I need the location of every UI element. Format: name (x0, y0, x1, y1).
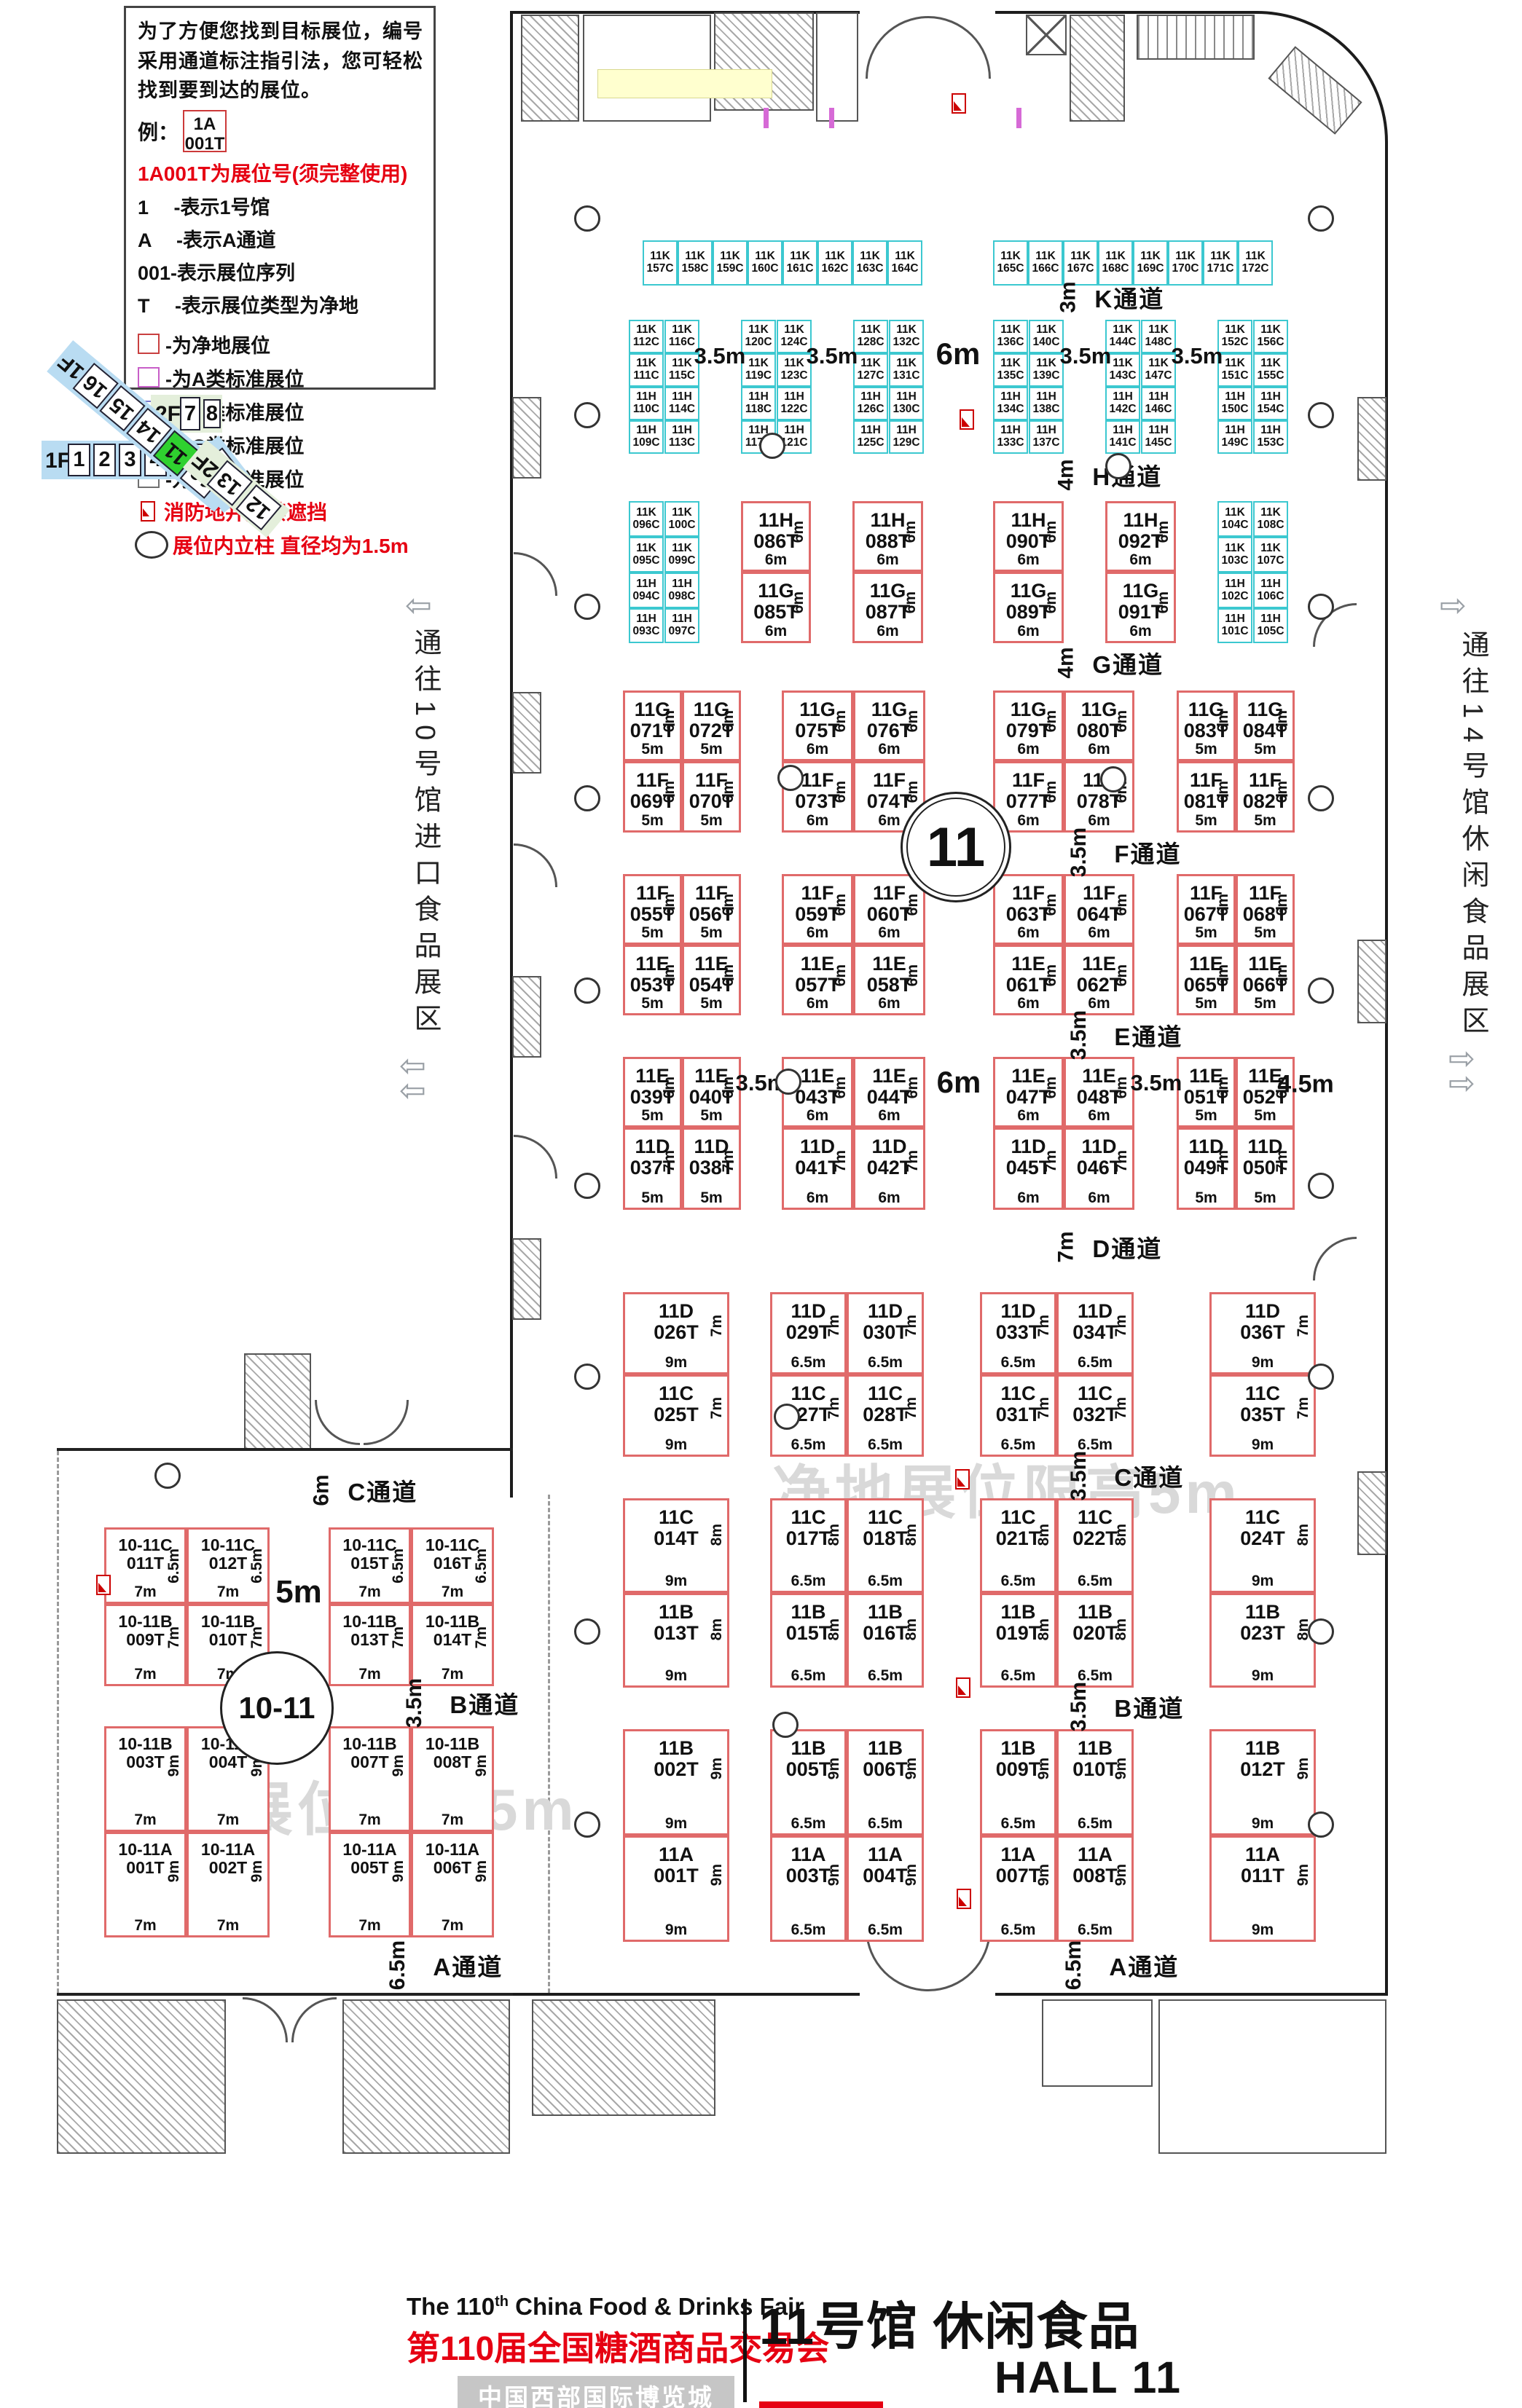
booth-width-dim: 6m (784, 812, 851, 830)
pillar-circle (775, 1069, 801, 1095)
stairs-block (512, 976, 541, 1058)
booth-depth-dim: 6m (832, 894, 850, 916)
booth-label: 11K131C (893, 358, 919, 382)
booth-label: 11K168C (1102, 251, 1129, 275)
aisle-name: A通道 (1109, 1948, 1179, 1983)
booth-depth-dim: 7m (1113, 1150, 1131, 1172)
booth-label: 11K128C (857, 324, 884, 348)
booth-11H-093C: 11H093C (629, 608, 664, 643)
booth-label: 11H093C (632, 613, 659, 637)
booth-width-dim: 7m (189, 1583, 267, 1601)
booth-11K-111C: 11K111C (629, 353, 664, 387)
booth-label: 11K160C (751, 251, 778, 275)
booth-depth-dim: 6m (832, 1077, 850, 1098)
booth-depth-dim: 6m (1215, 964, 1232, 986)
corridor-arrow-left-icon: ⇦ (399, 1072, 426, 1109)
booth-11K-136C: 11K136C (993, 320, 1028, 353)
booth-label: 11H113C (669, 425, 695, 449)
booth-11F-068T: 11F068T5m6m (1236, 874, 1295, 945)
aisle-name: C通道 (348, 1473, 417, 1508)
gap-dim-label: 3.5m (807, 343, 858, 369)
fair-title-en: The 110th China Food & Drinks Fair (407, 2293, 734, 2321)
booth-depth-dim: 6m (902, 521, 919, 543)
booth-10-11B-014T: 10-11B014T7m7m (411, 1604, 494, 1686)
booth-label: 11K136C (997, 324, 1024, 348)
booth-width-dim: 7m (413, 1583, 492, 1601)
aisle-name: G通道 (1092, 645, 1164, 680)
booth-width-dim: 6m (784, 1107, 851, 1125)
booth-label: 11H094C (632, 578, 659, 602)
booth-11E-040T: 11E040T5m6m (682, 1057, 741, 1128)
booth-11H-137C: 11H137C (1029, 420, 1064, 454)
pillar-circle (574, 977, 600, 1004)
booth-11K-132C: 11K132C (889, 320, 924, 353)
booth-depth-dim: 8m (825, 1618, 843, 1640)
hall-number-circle: 11 (901, 792, 1011, 902)
booth-width-dim: 5m (684, 812, 739, 830)
booth-width-dim: 5m (1179, 924, 1233, 942)
booth-label: 11H134C (997, 391, 1024, 415)
pillar-circle (1308, 1364, 1334, 1390)
booth-depth-dim: 6m (720, 1077, 737, 1098)
booth-label: 11H109C (632, 425, 659, 449)
booth-11H-109C: 11H109C (629, 420, 664, 454)
booth-11K-161C: 11K161C (782, 240, 817, 286)
aisle-name: F通道 (1114, 835, 1181, 870)
booth-11F-082T: 11F082T5m6m (1236, 761, 1295, 833)
aisle-width-dim: 3.5m (1067, 1010, 1091, 1060)
booth-depth-dim: 7m (825, 1397, 843, 1419)
booth-width-dim: 6m (995, 623, 1062, 640)
booth-depth-dim: 7m (1035, 1397, 1053, 1419)
booth-11G-085T: 11G085T6m6m (741, 572, 811, 643)
pillar-circle (1308, 1173, 1334, 1199)
booth-width-dim: 7m (106, 1666, 184, 1683)
booth-label: 11K095C (632, 543, 659, 567)
aisle-K通道: 3mK通道 (1053, 280, 1164, 315)
booth-10-11B-013T: 10-11B013T7m7m (329, 1604, 411, 1686)
gap-dim-label: 6m (936, 337, 981, 371)
booth-label: 11K166C (1032, 251, 1059, 275)
booth-width-dim: 6.5m (849, 1667, 922, 1685)
booth-width-dim: 9m (625, 1815, 727, 1833)
pillar-circle (777, 765, 804, 791)
booth-11D-049T: 11D049T5m7m (1177, 1128, 1236, 1210)
booth-width-dim: 7m (331, 1811, 409, 1829)
booth-11G-087T: 11G087T6m6m (852, 572, 923, 643)
aisle-C通道: 6mC通道 (306, 1473, 417, 1508)
booth-width-dim: 6m (784, 995, 851, 1012)
booth-11K-157C: 11K157C (643, 240, 678, 286)
booth-11K-162C: 11K162C (817, 240, 852, 286)
booth-11K-165C: 11K165C (993, 240, 1028, 286)
aisle-name: E通道 (1114, 1018, 1182, 1052)
booth-11K-171C: 11K171C (1203, 240, 1238, 286)
booth-depth-dim: 6m (1043, 894, 1060, 916)
booth-10-11B-009T: 10-11B009T7m7m (104, 1604, 187, 1686)
booth-depth-dim: 7m (1113, 1397, 1130, 1419)
aisle-G通道: 4mG通道 (1051, 645, 1164, 680)
booth-11K-095C: 11K095C (629, 537, 664, 573)
booth-width-dim: 6m (995, 741, 1062, 758)
booth-11H-138C: 11H138C (1029, 387, 1064, 420)
aisle-E通道: 3.5mE通道 (1054, 1018, 1182, 1052)
pillar-circle (574, 1173, 600, 1199)
gap-dim-label: 3.5m (1172, 343, 1223, 369)
booth-label: 11K164C (891, 251, 918, 275)
booth-11D-045T: 11D045T6m7m (993, 1128, 1064, 1210)
booth-label: 11K161C (786, 251, 813, 275)
room-box (816, 12, 858, 122)
booth-label: 11H150C (1221, 391, 1248, 415)
aisle-width-dim: 6.5m (1062, 1940, 1086, 1990)
booth-11H-153C: 11H153C (1253, 420, 1288, 454)
booth-label: 11K172C (1241, 251, 1268, 275)
booth-label: 11H118C (745, 391, 772, 415)
booth-label: 11K116C (669, 324, 695, 348)
booth-11K-164C: 11K164C (887, 240, 922, 286)
booth-width-dim: 5m (625, 812, 680, 830)
booth-depth-dim: 6.5m (165, 1549, 183, 1583)
venue-label: 中国西部国际博览城 (458, 2376, 734, 2408)
booth-label: 11H125C (857, 425, 884, 449)
booth-depth-dim: 7m (825, 1315, 843, 1337)
room-box (1137, 15, 1255, 60)
booth-depth-dim: 6m (1155, 521, 1172, 543)
booth-11C-022T: 11C022T6.5m8m (1056, 1498, 1134, 1593)
booth-width-dim: 6.5m (982, 1921, 1054, 1939)
booth-depth-dim: 7m (1035, 1315, 1053, 1337)
booth-depth-dim: 6m (1215, 894, 1232, 916)
fire-well-icon (957, 1889, 971, 1909)
booth-label: 11K108C (1257, 507, 1284, 531)
booth-width-dim: 6.5m (982, 1573, 1054, 1590)
booth-11E-058T: 11E058T6m6m (853, 945, 925, 1015)
booth-depth-dim: 9m (1113, 1758, 1130, 1779)
booth-width-dim: 5m (684, 1107, 739, 1125)
fire-well-icon (96, 1575, 111, 1595)
booth-depth-dim: 6m (1043, 1077, 1060, 1098)
booth-label: 11K111C (633, 358, 659, 382)
aisle-B通道: 3.5mB通道 (1054, 1689, 1184, 1724)
booth-label: 11H102C (1221, 578, 1248, 602)
aisle-F通道: 3.5mF通道 (1054, 835, 1182, 870)
booth-width-dim: 6.5m (849, 1815, 922, 1833)
booth-depth-dim: 6m (1274, 781, 1291, 803)
booth-depth-dim: 6m (1043, 591, 1060, 613)
booth-width-dim: 6.5m (982, 1436, 1054, 1454)
booth-width-dim: 9m (1212, 1354, 1314, 1372)
booth-depth-dim: 6m (1274, 710, 1291, 732)
booth-label: 11K115C (669, 358, 695, 382)
booth-11A-004T: 11A004T6.5m9m (847, 1835, 924, 1942)
booth-label: 11K127C (857, 358, 884, 382)
booth-width-dim: 5m (625, 995, 680, 1012)
booth-label: 11H105C (1257, 613, 1284, 637)
booth-width-dim: 6m (855, 924, 923, 942)
booth-11E-044T: 11E044T6m6m (853, 1057, 925, 1128)
booth-11B-006T: 11B006T6.5m9m (847, 1729, 924, 1835)
booth-11H-118C: 11H118C (741, 387, 776, 420)
booth-depth-dim: 6m (661, 710, 678, 732)
booth-depth-dim: 6m (1043, 781, 1060, 803)
booth-11K-120C: 11K120C (741, 320, 776, 353)
gap-dim-label: 3.5m (694, 343, 746, 369)
stairs-block (512, 1238, 541, 1320)
booth-11G-075T: 11G075T6m6m (782, 690, 853, 761)
booth-label: 11K135C (997, 358, 1024, 382)
booth-label: 11K100C (668, 507, 695, 531)
booth-11B-009T: 11B009T6.5m9m (980, 1729, 1056, 1835)
pillar-circle (574, 1364, 600, 1390)
booth-11D-037T: 11D037T5m7m (623, 1128, 682, 1210)
booth-11F-069T: 11F069T5m6m (623, 761, 682, 833)
booth-depth-dim: 8m (1035, 1618, 1053, 1640)
booth-width-dim: 6m (855, 623, 921, 640)
booth-10-11C-016T: 10-11C016T7m6.5m (411, 1527, 494, 1604)
door-arc (291, 1997, 337, 2042)
booth-11A-007T: 11A007T6.5m9m (980, 1835, 1056, 1942)
booth-width-dim: 6.5m (849, 1436, 922, 1454)
pillar-circle (1308, 977, 1334, 1004)
booth-11K-170C: 11K170C (1168, 240, 1203, 286)
booth-depth-dim: 8m (708, 1618, 726, 1640)
booth-10-11A-006T: 10-11A006T7m9m (411, 1832, 494, 1937)
plan-layer: 净地展位限高5m净地展位限高5m11K157C11K158C11K159C11K… (0, 0, 1522, 2408)
booth-width-dim: 6.5m (982, 1667, 1054, 1685)
booth-depth-dim: 7m (165, 1626, 183, 1648)
booth-width-dim: 9m (625, 1667, 727, 1685)
booth-11H-141C: 11H141C (1105, 420, 1140, 454)
door-frame-tick (764, 108, 769, 128)
pillar-circle (1100, 766, 1126, 792)
booth-depth-dim: 7m (832, 1150, 850, 1172)
booth-11G-080T: 11G080T6m6m (1064, 690, 1134, 761)
pillar-circle (1308, 205, 1334, 232)
booth-depth-dim: 6m (661, 894, 678, 916)
booth-label: 11H142C (1109, 391, 1136, 415)
booth-depth-dim: 9m (1295, 1758, 1312, 1779)
booth-width-dim: 5m (625, 1189, 680, 1207)
fire-well-icon (960, 409, 974, 430)
booth-width-dim: 5m (684, 1189, 739, 1207)
boundary-dashed-line (57, 1451, 59, 1993)
booth-width-dim: 6.5m (772, 1921, 844, 1939)
booth-width-dim: 6m (995, 995, 1062, 1012)
booth-11K-103C: 11K103C (1217, 537, 1252, 573)
booth-11B-023T: 11B023T9m8m (1209, 1593, 1316, 1688)
booth-width-dim: 6.5m (772, 1573, 844, 1590)
room-box (1158, 1999, 1386, 2154)
booth-11G-084T: 11G084T5m6m (1236, 690, 1295, 761)
aisle-A通道: 6.5mA通道 (1049, 1948, 1179, 1983)
booth-11G-071T: 11G071T5m6m (623, 690, 682, 761)
booth-depth-dim: 6m (720, 781, 737, 803)
booth-depth-dim: 9m (1035, 1864, 1053, 1886)
booth-label: 11K119C (745, 358, 772, 382)
booth-11F-067T: 11F067T5m6m (1177, 874, 1236, 945)
pillar-circle (1308, 1618, 1334, 1645)
stairs-block (1357, 397, 1386, 481)
booth-depth-dim: 6.5m (390, 1549, 407, 1583)
booth-label: 11H153C (1257, 425, 1284, 449)
booth-11K-158C: 11K158C (678, 240, 713, 286)
booth-width-dim: 9m (625, 1573, 727, 1590)
booth-depth-dim: 9m (1295, 1864, 1312, 1886)
booth-depth-dim: 6m (790, 591, 807, 613)
aisle-A通道: 6.5mA通道 (373, 1948, 503, 1983)
pillar-circle (574, 205, 600, 232)
pillar-circle (574, 402, 600, 428)
booth-11E-061T: 11E061T6m6m (993, 945, 1064, 1015)
pillar-circle (154, 1463, 181, 1489)
booth-11H-113C: 11H113C (664, 420, 699, 454)
booth-width-dim: 6m (743, 551, 809, 569)
booth-11F-063T: 11F063T6m6m (993, 874, 1064, 945)
hall-title-en: HALL 11 (759, 2352, 1182, 2403)
aisle-width-dim: 3.5m (1067, 1451, 1091, 1500)
booth-11C-014T: 11C014T9m8m (623, 1498, 729, 1593)
door-arc (364, 1400, 409, 1445)
pillar-circle (774, 1404, 800, 1430)
booth-depth-dim: 6m (904, 894, 922, 916)
booth-depth-dim: 9m (1113, 1864, 1130, 1886)
booth-width-dim: 6m (855, 551, 921, 569)
booth-label: 11K169C (1137, 251, 1164, 275)
gap-dim-label: 5m (275, 1574, 322, 1610)
booth-width-dim: 9m (625, 1354, 727, 1372)
booth-label: 11H137C (1032, 425, 1059, 449)
booth-11A-011T: 11A011T9m9m (1209, 1835, 1316, 1942)
booth-depth-dim: 7m (473, 1626, 490, 1648)
booth-depth-dim: 9m (473, 1860, 490, 1882)
booth-11K-160C: 11K160C (748, 240, 782, 286)
booth-11E-065T: 11E065T5m6m (1177, 945, 1236, 1015)
booth-depth-dim: 7m (708, 1315, 726, 1337)
booth-depth-dim: 6m (720, 710, 737, 732)
stairs-block (342, 1999, 510, 2154)
booth-11G-076T: 11G076T6m6m (853, 690, 925, 761)
booth-label: 11K155C (1257, 358, 1284, 382)
booth-depth-dim: 6m (1215, 710, 1232, 732)
stairs-block (1070, 15, 1125, 122)
booth-11F-070T: 11F070T5m6m (682, 761, 741, 833)
booth-depth-dim: 7m (1295, 1315, 1312, 1337)
booth-11F-059T: 11F059T6m6m (782, 874, 853, 945)
booth-11K-172C: 11K172C (1238, 240, 1273, 286)
gap-dim-label: 3.5m (1131, 1070, 1182, 1096)
booth-label: 11H141C (1109, 425, 1136, 449)
pillar-circle (1105, 453, 1131, 479)
booth-width-dim: 5m (1238, 924, 1292, 942)
booth-11B-002T: 11B002T9m9m (623, 1729, 729, 1835)
booth-11K-139C: 11K139C (1029, 353, 1064, 387)
booth-11C-035T: 11C035T9m7m (1209, 1374, 1316, 1457)
booth-width-dim: 6m (995, 1189, 1062, 1207)
booth-depth-dim: 7m (708, 1397, 726, 1419)
booth-11K-135C: 11K135C (993, 353, 1028, 387)
booth-width-dim: 6.5m (849, 1921, 922, 1939)
booth-width-dim: 7m (189, 1811, 267, 1829)
booth-label: 11K157C (646, 251, 673, 275)
pillar-circle (574, 1618, 600, 1645)
booth-11D-046T: 11D046T6m7m (1064, 1128, 1134, 1210)
booth-depth-dim: 6m (902, 591, 919, 613)
aisle-width-dim: 6m (310, 1474, 334, 1506)
booth-width-dim: 5m (684, 924, 739, 942)
booth-11F-055T: 11F055T5m6m (623, 874, 682, 945)
booth-10-11B-007T: 10-11B007T7m9m (329, 1726, 411, 1832)
booth-depth-dim: 8m (1113, 1618, 1130, 1640)
booth-11D-038T: 11D038T5m7m (682, 1128, 741, 1210)
booth-label: 11H106C (1257, 578, 1284, 602)
booth-11G-089T: 11G089T6m6m (993, 572, 1064, 643)
booth-11K-159C: 11K159C (713, 240, 748, 286)
booth-11G-091T: 11G091T6m6m (1105, 572, 1176, 643)
booth-depth-dim: 9m (825, 1758, 843, 1779)
booth-10-11A-001T: 10-11A001T7m9m (104, 1832, 187, 1937)
booth-depth-dim: 6m (661, 964, 678, 986)
booth-width-dim: 6m (855, 995, 923, 1012)
wall-opening (860, 1992, 995, 1999)
booth-11E-066T: 11E066T5m6m (1236, 945, 1295, 1015)
booth-depth-dim: 7m (1295, 1397, 1312, 1419)
booth-11H-086T: 11H086T6m6m (741, 501, 811, 572)
booth-width-dim: 6.5m (772, 1354, 844, 1372)
booth-10-11C-015T: 10-11C015T7m6.5m (329, 1527, 411, 1604)
booth-label: 11H097C (668, 613, 695, 637)
booth-label: 11K148C (1145, 324, 1172, 348)
booth-depth-dim: 9m (248, 1860, 266, 1882)
booth-depth-dim: 6m (1113, 964, 1131, 986)
booth-11C-031T: 11C031T6.5m7m (980, 1374, 1056, 1457)
wall-opening (507, 1498, 513, 1993)
aisle-width-dim: 3.5m (1067, 1682, 1091, 1731)
booth-width-dim: 7m (413, 1811, 492, 1829)
booth-width-dim: 6.5m (772, 1815, 844, 1833)
booth-width-dim: 9m (625, 1921, 727, 1939)
booth-11D-026T: 11D026T9m7m (623, 1292, 729, 1374)
booth-width-dim: 9m (1212, 1436, 1314, 1454)
booth-width-dim: 6.5m (982, 1354, 1054, 1372)
aisle-width-dim: 4m (1054, 459, 1079, 490)
booth-label: 11K096C (632, 507, 659, 531)
stairs-block (521, 15, 579, 122)
booth-11D-033T: 11D033T6.5m7m (980, 1292, 1056, 1374)
booth-11C-017T: 11C017T6.5m8m (770, 1498, 847, 1593)
booth-11K-112C: 11K112C (629, 320, 664, 353)
fire-well-icon (956, 1677, 970, 1698)
booth-depth-dim: 6.5m (473, 1549, 490, 1583)
booth-depth-dim: 6.5m (248, 1549, 266, 1583)
booth-label: 11K158C (681, 251, 708, 275)
booth-11H-126C: 11H126C (853, 387, 888, 420)
booth-width-dim: 9m (625, 1436, 727, 1454)
pillar-circle (1308, 785, 1334, 811)
booth-depth-dim: 6m (720, 894, 737, 916)
booth-label: 11K132C (893, 324, 919, 348)
hall-title-cn: 11号馆 休闲食品 (759, 2286, 1182, 2359)
booth-width-dim: 6.5m (1059, 1815, 1131, 1833)
booth-width-dim: 6m (995, 924, 1062, 942)
booth-11D-030T: 11D030T6.5m7m (847, 1292, 924, 1374)
booth-11H-110C: 11H110C (629, 387, 664, 420)
booth-label: 11H133C (997, 425, 1024, 449)
booth-label: 11K107C (1257, 543, 1284, 567)
booth-width-dim: 7m (331, 1583, 409, 1601)
booth-11E-051T: 11E051T5m6m (1177, 1057, 1236, 1128)
booth-depth-dim: 9m (390, 1860, 407, 1882)
